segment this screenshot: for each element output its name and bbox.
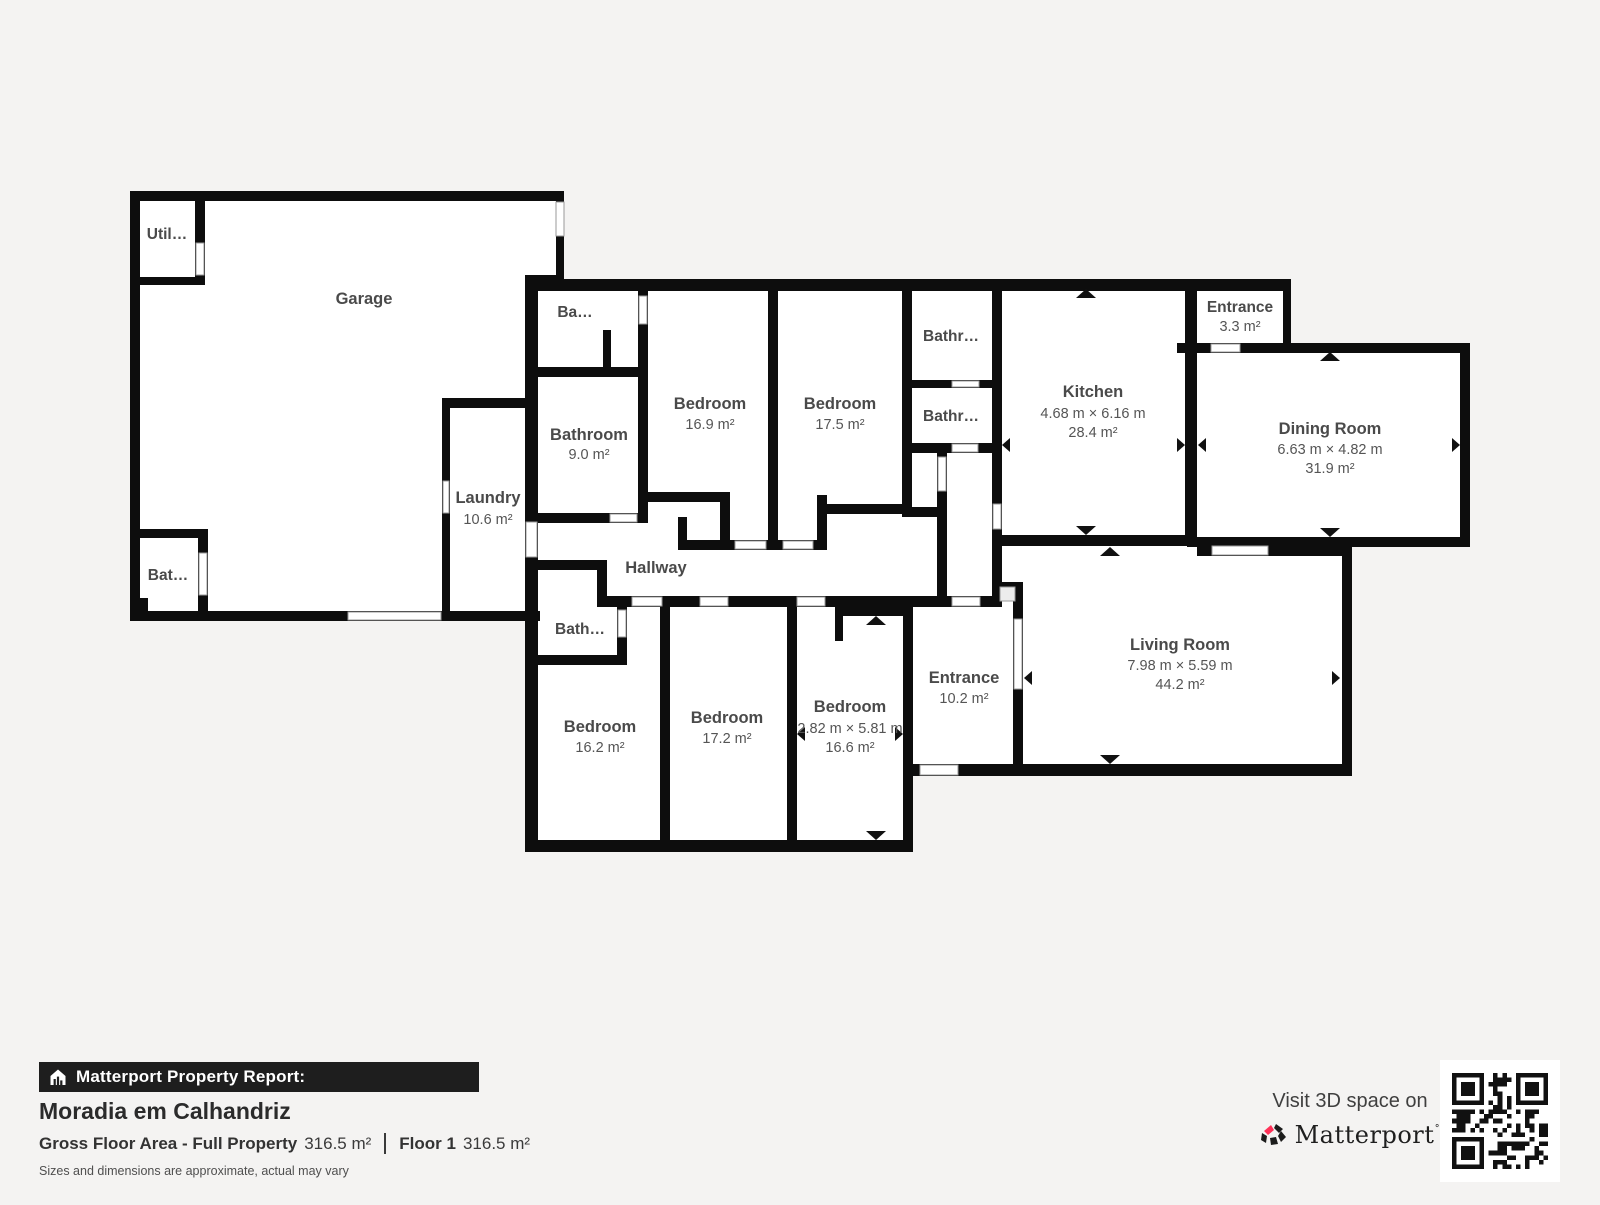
room-label-bath-lower: Bath… bbox=[555, 621, 605, 638]
visit-3d-label: Visit 3D space on bbox=[1240, 1090, 1460, 1113]
room-label-bedroom-166: Bedroom bbox=[814, 698, 886, 716]
room-area-living: 44.2 m² bbox=[1155, 677, 1204, 693]
house-icon bbox=[49, 1068, 67, 1086]
room-label-bathr-lower: Bathr… bbox=[923, 408, 979, 425]
report-header-label: Matterport Property Report: bbox=[76, 1067, 305, 1087]
room-label-bathroom: Bathroom bbox=[550, 426, 628, 444]
stats-divider bbox=[384, 1133, 386, 1154]
floor-value: 316.5 m² bbox=[463, 1134, 530, 1154]
floor-label: Floor 1 bbox=[399, 1134, 456, 1154]
room-label-bat: Bat… bbox=[148, 567, 188, 584]
room-area-laundry: 10.6 m² bbox=[463, 512, 512, 528]
room-label-bedroom-162: Bedroom bbox=[564, 718, 636, 736]
room-label-bedroom-175: Bedroom bbox=[804, 395, 876, 413]
room-label-ba: Ba… bbox=[557, 304, 592, 321]
room-area-kitchen: 28.4 m² bbox=[1068, 425, 1117, 441]
report-header-bar: Matterport Property Report: bbox=[39, 1062, 479, 1092]
room-area-entrance-33: 3.3 m² bbox=[1219, 319, 1260, 335]
visit-3d-block: Visit 3D space on Matterport bbox=[1240, 1090, 1460, 1149]
room-area-dining: 31.9 m² bbox=[1305, 461, 1354, 477]
room-dims-dining: 6.63 m × 4.82 m bbox=[1277, 442, 1382, 458]
matterport-wordmark: Matterport bbox=[1295, 1121, 1441, 1149]
room-area-bedroom-166: 16.6 m² bbox=[825, 740, 874, 756]
disclaimer-text: Sizes and dimensions are approximate, ac… bbox=[39, 1164, 349, 1178]
gfa-label: Gross Floor Area - Full Property bbox=[39, 1134, 297, 1154]
room-area-bedroom-162: 16.2 m² bbox=[575, 740, 624, 756]
room-label-util: Util… bbox=[147, 226, 187, 243]
room-area-bedroom-175: 17.5 m² bbox=[815, 417, 864, 433]
room-area-bedroom-169: 16.9 m² bbox=[685, 417, 734, 433]
property-name: Moradia em Calhandriz bbox=[39, 1098, 291, 1125]
room-area-bathroom: 9.0 m² bbox=[568, 447, 609, 463]
room-label-bedroom-172: Bedroom bbox=[691, 709, 763, 727]
room-dims-kitchen: 4.68 m × 6.16 m bbox=[1040, 406, 1145, 422]
qr-code bbox=[1440, 1060, 1560, 1182]
room-label-bathr-upper: Bathr… bbox=[923, 328, 979, 345]
room-label-bedroom-169: Bedroom bbox=[674, 395, 746, 413]
floorplan-canvas: Util… Garage Bat… Laundry 10.6 m² Ba… Ba… bbox=[0, 0, 1600, 1200]
gfa-value: 316.5 m² bbox=[304, 1134, 371, 1154]
room-dims-bedroom-166: 2.82 m × 5.81 m bbox=[797, 721, 902, 737]
room-label-kitchen: Kitchen bbox=[1063, 383, 1124, 401]
room-label-entrance-33: Entrance bbox=[1207, 299, 1274, 316]
room-dims-living: 7.98 m × 5.59 m bbox=[1127, 658, 1232, 674]
room-label-dining: Dining Room bbox=[1279, 420, 1382, 438]
room-label-hallway: Hallway bbox=[625, 559, 687, 577]
room-label-living: Living Room bbox=[1130, 636, 1230, 654]
room-area-bedroom-172: 17.2 m² bbox=[702, 731, 751, 747]
room-label-garage: Garage bbox=[336, 290, 393, 308]
room-label-laundry: Laundry bbox=[455, 489, 521, 507]
area-stats-row: Gross Floor Area - Full Property 316.5 m… bbox=[39, 1133, 530, 1154]
room-area-entrance-102: 10.2 m² bbox=[939, 691, 988, 707]
matterport-logo-icon bbox=[1260, 1121, 1288, 1149]
matterport-brand-row: Matterport bbox=[1240, 1121, 1460, 1149]
room-label-entrance-102: Entrance bbox=[929, 669, 1000, 687]
